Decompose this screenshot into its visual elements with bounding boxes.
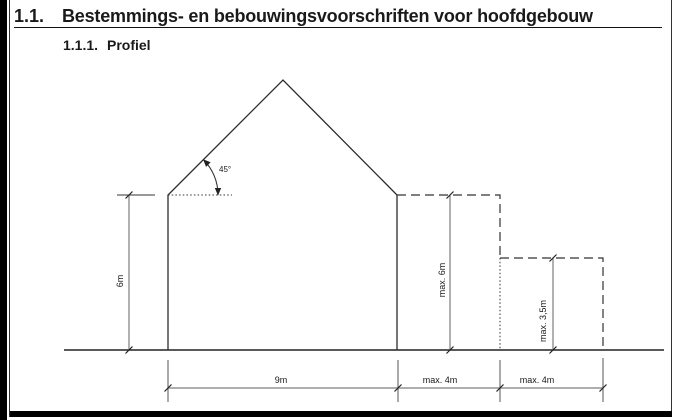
extension2-width-label: max. 4m <box>520 375 555 385</box>
extension1-width-label: max. 4m <box>423 375 458 385</box>
dimension-max-main-height: max. 6m <box>437 192 454 354</box>
house-outline <box>168 80 397 350</box>
dimension-widths: 9m max. 4m max. 4m <box>165 358 607 402</box>
wall-height-label: 6m <box>115 275 125 288</box>
dimension-wall-height: 6m <box>115 192 155 354</box>
max-extension-height-label: max. 3,5m <box>538 300 548 342</box>
extension-zone-1-dashed-outline <box>397 195 500 258</box>
roof-angle-label: 45° <box>219 165 231 174</box>
max-main-height-label: max. 6m <box>437 263 447 298</box>
dimension-max-extension-height: max. 3,5m <box>538 255 557 354</box>
main-width-label: 9m <box>275 375 288 385</box>
document-page: 1.1. Bestemmings- en bebouwingsvoorschri… <box>0 0 674 420</box>
extension-zone-2-dashed-outline <box>500 258 603 350</box>
profile-diagram: 45° 6m max. 6m max. 3,5m <box>0 0 674 420</box>
roof-angle-arc <box>203 160 218 195</box>
